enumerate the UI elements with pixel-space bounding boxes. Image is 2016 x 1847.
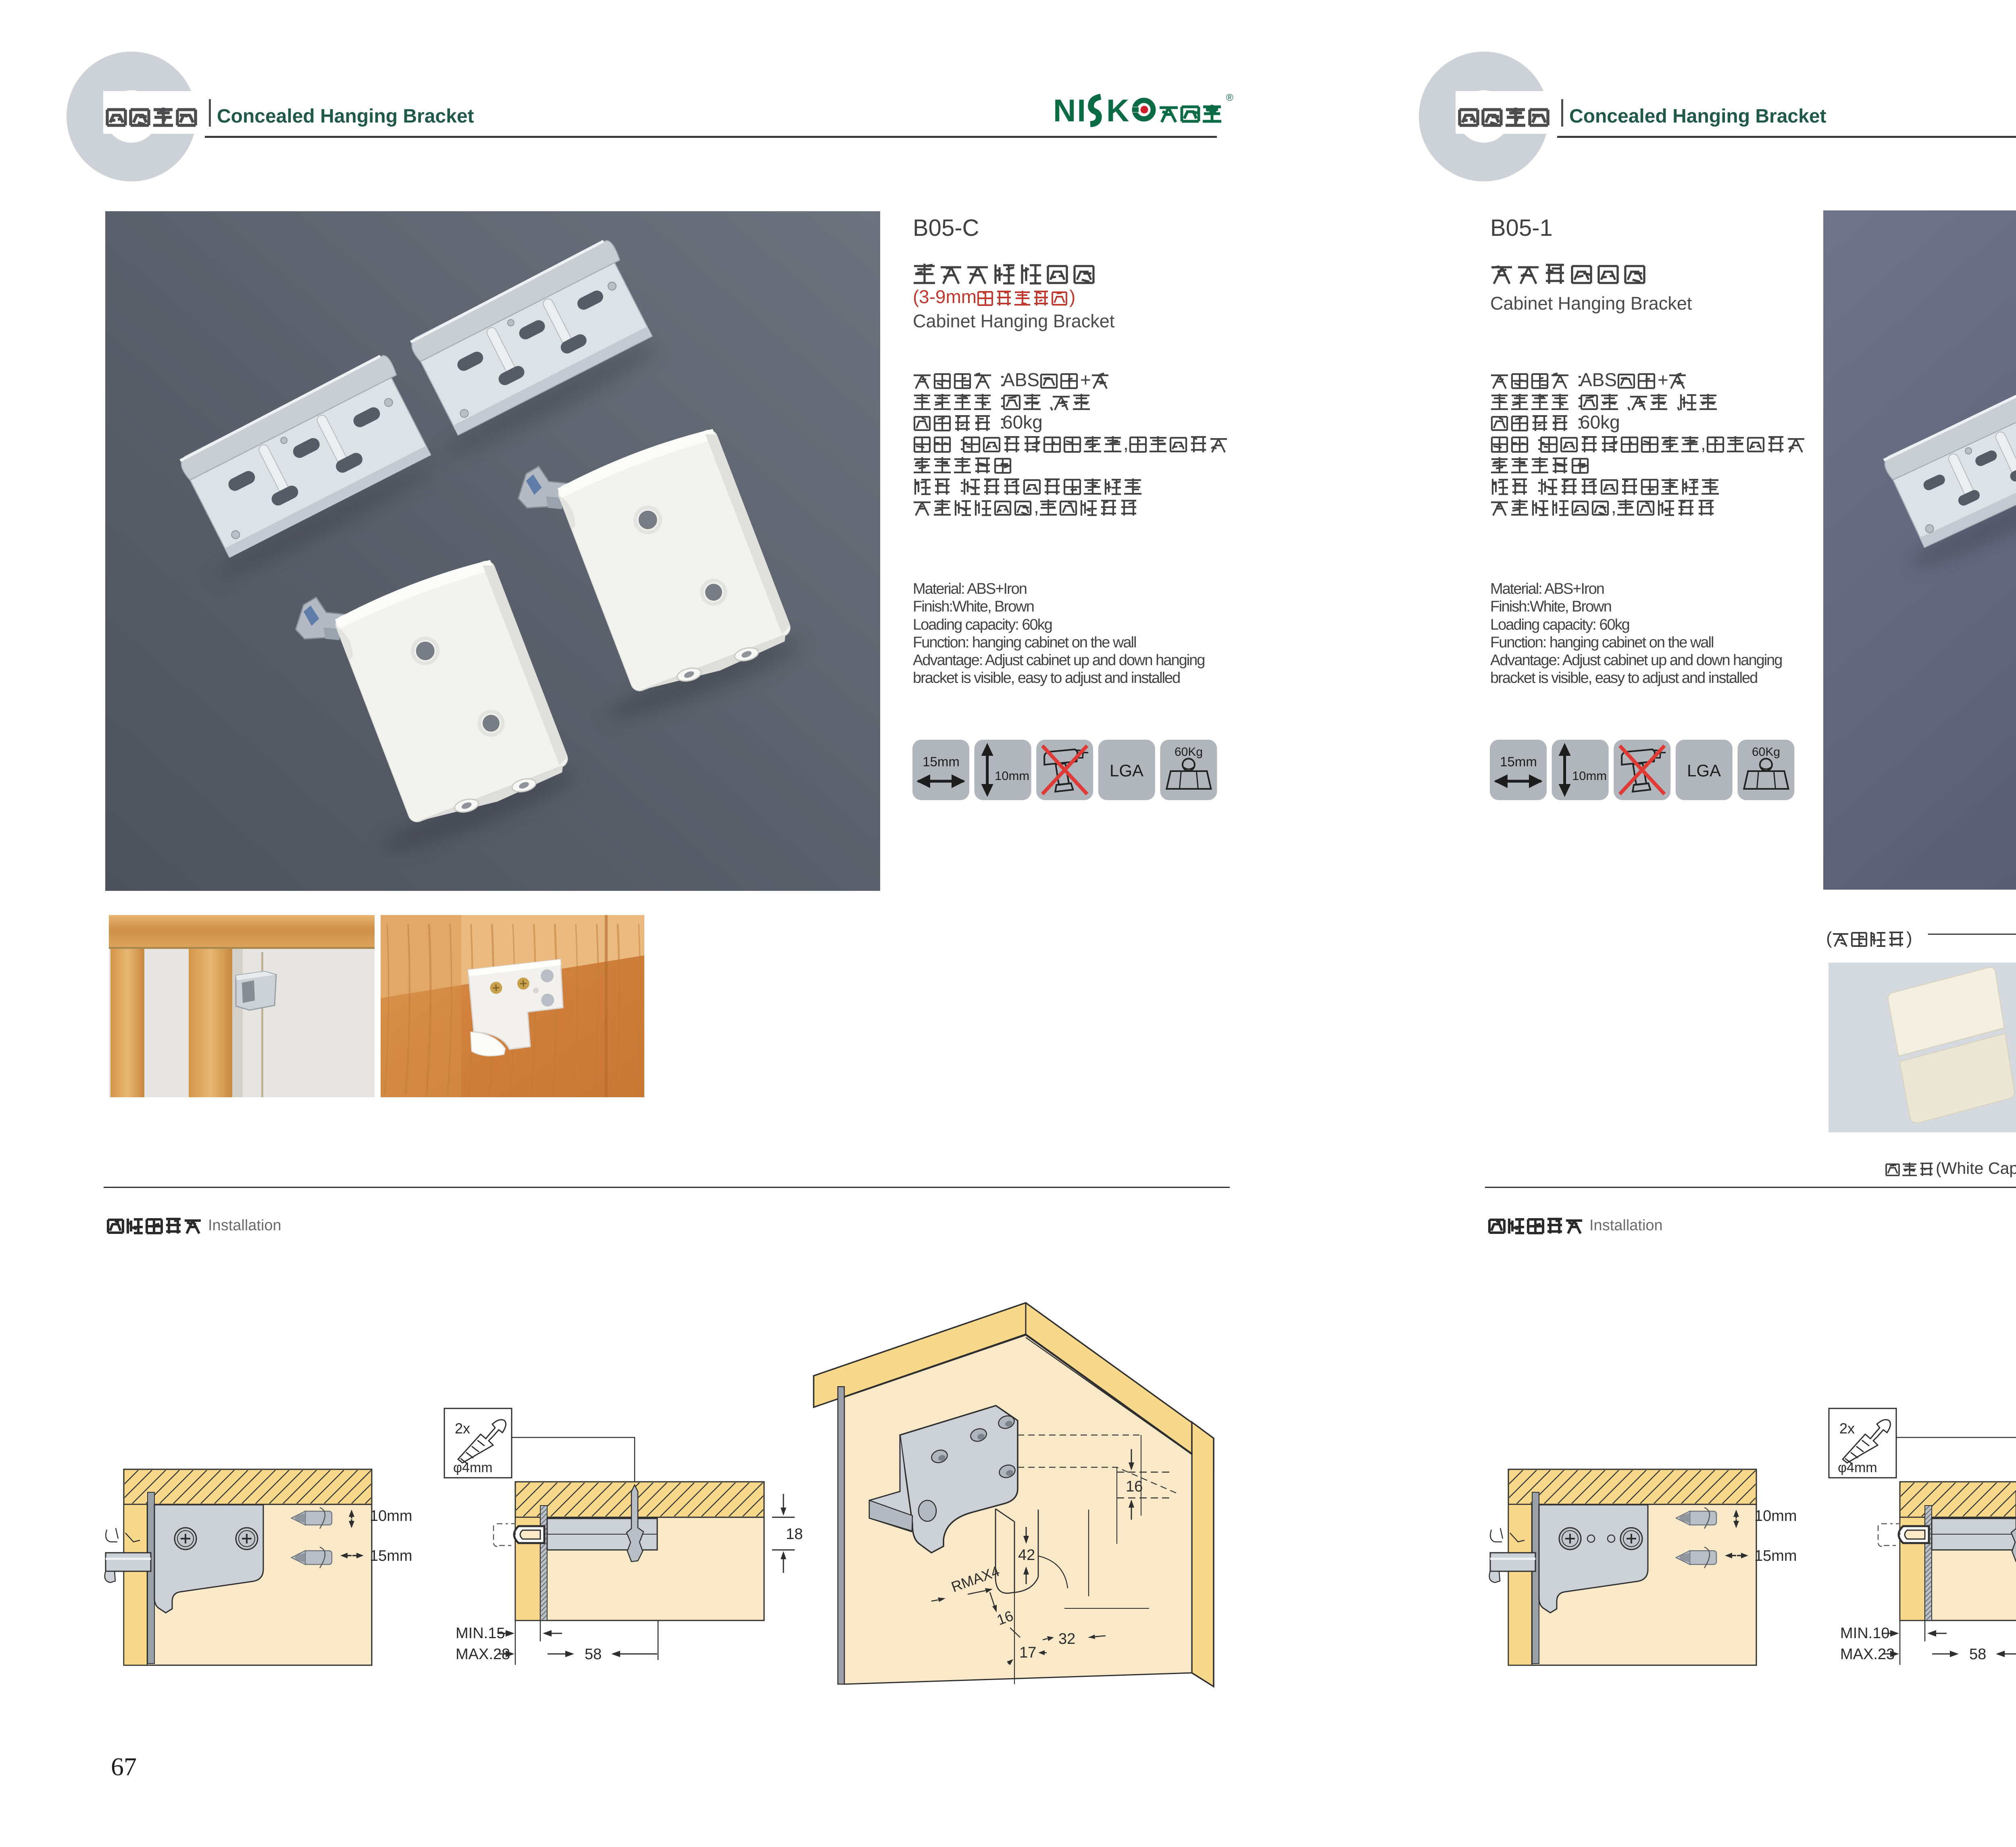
svg-text:B05-C: B05-C bbox=[913, 215, 979, 241]
svg-text:10mm: 10mm bbox=[1754, 1508, 1797, 1525]
svg-text:LGA: LGA bbox=[1110, 761, 1143, 780]
svg-text:10mm: 10mm bbox=[995, 769, 1029, 783]
svg-text:K: K bbox=[1106, 93, 1129, 128]
svg-text:32: 32 bbox=[1058, 1631, 1075, 1647]
svg-text:,: , bbox=[1701, 433, 1706, 454]
svg-text:Function: hanging cabinet on t: Function: hanging cabinet on the wall bbox=[913, 634, 1136, 651]
svg-text:67: 67 bbox=[111, 1752, 137, 1781]
svg-text:58: 58 bbox=[585, 1646, 602, 1663]
svg-text:60Kg: 60Kg bbox=[1175, 745, 1203, 759]
svg-text:2x: 2x bbox=[455, 1420, 470, 1437]
svg-text:42: 42 bbox=[1018, 1547, 1035, 1564]
svg-text:,: , bbox=[1034, 496, 1039, 517]
svg-text:17: 17 bbox=[1019, 1644, 1036, 1661]
svg-text:Material: ABS+Iron: Material: ABS+Iron bbox=[1490, 580, 1604, 597]
svg-text:+: + bbox=[1658, 369, 1668, 390]
svg-text:φ4mm: φ4mm bbox=[1838, 1460, 1877, 1475]
svg-text:(White Cap): (White Cap) bbox=[1936, 1159, 2016, 1177]
svg-text:Loading capacity: 60kg: Loading capacity: 60kg bbox=[913, 616, 1052, 633]
svg-text:Finish:White, Brown: Finish:White, Brown bbox=[913, 598, 1034, 615]
svg-text:Installation: Installation bbox=[1589, 1217, 1663, 1234]
svg-text:): ) bbox=[1906, 928, 1912, 948]
svg-text:Finish:White, Brown: Finish:White, Brown bbox=[1490, 598, 1611, 615]
svg-text:Installation: Installation bbox=[208, 1217, 281, 1234]
svg-text:58: 58 bbox=[1969, 1646, 1986, 1663]
svg-text:Cabinet Hanging Bracket: Cabinet Hanging Bracket bbox=[913, 311, 1115, 331]
svg-text:60kg: 60kg bbox=[1002, 412, 1043, 433]
svg-text:60kg: 60kg bbox=[1580, 412, 1620, 433]
svg-text:Concealed Hanging Bracket: Concealed Hanging Bracket bbox=[1569, 106, 1826, 127]
svg-text:15mm: 15mm bbox=[1500, 754, 1537, 769]
svg-text:ABS: ABS bbox=[1002, 369, 1039, 390]
svg-text:bracket is visible, easy to ad: bracket is visible, easy to adjust and i… bbox=[1490, 670, 1757, 686]
svg-text:Advantage: Adjust cabinet up a: Advantage: Adjust cabinet up and down ha… bbox=[913, 652, 1204, 669]
svg-text:Concealed Hanging Bracket: Concealed Hanging Bracket bbox=[217, 106, 474, 127]
svg-text:NI: NI bbox=[1053, 93, 1087, 128]
svg-text:15mm: 15mm bbox=[1754, 1547, 1797, 1564]
svg-text:LGA: LGA bbox=[1687, 761, 1721, 780]
svg-text:B05-1: B05-1 bbox=[1490, 215, 1553, 241]
svg-text:60Kg: 60Kg bbox=[1752, 745, 1780, 759]
svg-text:bracket is visible, easy to ad: bracket is visible, easy to adjust and i… bbox=[913, 670, 1180, 686]
svg-text:): ) bbox=[1069, 286, 1075, 307]
svg-text:16: 16 bbox=[1126, 1478, 1143, 1495]
svg-text:10mm: 10mm bbox=[370, 1508, 412, 1525]
svg-text:15mm: 15mm bbox=[370, 1547, 412, 1564]
svg-text:ABS: ABS bbox=[1580, 369, 1617, 390]
svg-text:Advantage: Adjust cabinet up a: Advantage: Adjust cabinet up and down ha… bbox=[1490, 652, 1782, 669]
svg-text:Loading capacity: 60kg: Loading capacity: 60kg bbox=[1490, 616, 1629, 633]
svg-text:18: 18 bbox=[786, 1526, 803, 1543]
svg-text:+: + bbox=[1080, 369, 1091, 390]
svg-text:Function: hanging cabinet on t: Function: hanging cabinet on the wall bbox=[1490, 634, 1713, 651]
svg-text:,: , bbox=[1123, 433, 1129, 454]
svg-text:(: ( bbox=[913, 286, 919, 307]
svg-text:3-9mm: 3-9mm bbox=[919, 286, 977, 307]
svg-text:(: ( bbox=[1826, 928, 1832, 948]
svg-text:10mm: 10mm bbox=[1572, 769, 1607, 783]
svg-text:,: , bbox=[1611, 496, 1616, 517]
svg-text:2x: 2x bbox=[1839, 1420, 1855, 1437]
svg-text:Cabinet Hanging Bracket: Cabinet Hanging Bracket bbox=[1490, 293, 1692, 314]
svg-text:15mm: 15mm bbox=[923, 754, 960, 769]
svg-text:®: ® bbox=[1226, 92, 1233, 103]
svg-text:φ4mm: φ4mm bbox=[453, 1460, 493, 1475]
svg-text:Material: ABS+Iron: Material: ABS+Iron bbox=[913, 580, 1027, 597]
